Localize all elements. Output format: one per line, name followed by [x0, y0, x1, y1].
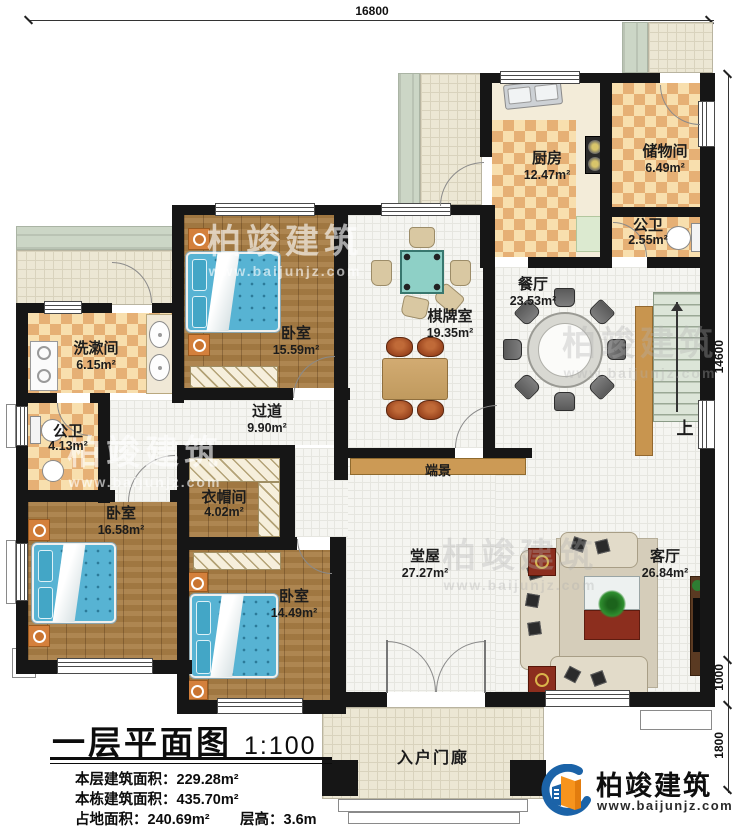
- pillow: [38, 587, 53, 619]
- pillow: [192, 296, 207, 328]
- corridor-passage: [295, 448, 334, 537]
- door-leaf: [484, 640, 486, 693]
- dining-chair: [554, 392, 575, 411]
- porch-step: [348, 812, 520, 824]
- door-leaf: [386, 640, 388, 693]
- dining-chair: [554, 288, 575, 307]
- wall: [345, 448, 455, 458]
- shower-drain: [42, 460, 64, 482]
- brand-website: www.baijunjz.com: [597, 798, 733, 813]
- window: [545, 690, 630, 707]
- pillow: [196, 601, 211, 635]
- patio-roof-band: [16, 226, 178, 250]
- cloakroom-hatch: [258, 482, 280, 537]
- window: [57, 658, 153, 674]
- brand-logo-svg: [540, 764, 592, 822]
- window: [16, 543, 28, 601]
- stat-footprint-area: 占地面积：240.69m²: [75, 808, 210, 829]
- cloakroom-hatch: [189, 458, 280, 482]
- closet-hatch: [190, 366, 278, 388]
- room-label-bath-north: 公卫2.55m²: [628, 218, 668, 248]
- room-label-bedroom-west: 卧室16.58m²: [98, 505, 145, 539]
- room-label-corridor: 过道9.90m²: [247, 404, 287, 436]
- room-label-kitchen: 厨房12.47m²: [524, 150, 571, 184]
- nightstand: [28, 625, 50, 647]
- window: [44, 301, 82, 314]
- stair-arrow-head: [671, 296, 683, 311]
- stairs-up-label: 上: [677, 414, 694, 439]
- room-corridor: [110, 400, 338, 445]
- title-rule: [50, 757, 332, 760]
- nightstand: [188, 334, 210, 356]
- brand-logo-icon: [540, 764, 592, 822]
- stat-building-area: 本栋建筑面积：435.70m²: [75, 788, 239, 809]
- washing-machine: [30, 341, 58, 391]
- nightstand: [186, 572, 208, 592]
- wall: [600, 73, 612, 268]
- wall: [700, 73, 715, 103]
- nightstand: [186, 680, 208, 700]
- wall: [700, 449, 715, 707]
- wall: [605, 207, 715, 217]
- stool: [386, 400, 413, 420]
- window-sill: [6, 540, 16, 604]
- room-label-living: 客厅26.84m²: [642, 548, 689, 582]
- sofa-pillow: [527, 621, 542, 636]
- window: [698, 400, 715, 449]
- sofa-pillow: [525, 593, 540, 608]
- room-label-washroom: 洗漱间6.15m²: [73, 340, 118, 374]
- wall: [16, 303, 28, 408]
- stool: [417, 400, 444, 420]
- side-table: [528, 548, 556, 576]
- stat-floor-area: 本层建筑面积：229.28m²: [75, 768, 239, 789]
- wall: [480, 73, 492, 157]
- wall: [172, 205, 184, 403]
- sink-basin: [534, 83, 559, 101]
- room-label-bedroom-south: 卧室14.49m²: [271, 588, 318, 622]
- room-label-storage: 储物间6.49m²: [642, 143, 687, 177]
- pillow: [38, 550, 53, 582]
- wall: [177, 448, 189, 714]
- northeast-terrace: [648, 22, 713, 73]
- plan-title-text: 一层平面图: [52, 724, 232, 761]
- window: [16, 406, 28, 446]
- plan-scale: 1:100: [244, 732, 317, 760]
- room-label-hall: 堂屋27.27m²: [402, 548, 449, 582]
- plant: [598, 590, 626, 618]
- stool: [386, 337, 413, 357]
- porch-label: 入户门廊: [397, 744, 469, 768]
- room-label-chess: 棋牌室19.35m²: [427, 308, 474, 342]
- room-label-bedroom-north: 卧室15.59m²: [273, 325, 320, 359]
- window: [500, 71, 580, 84]
- window: [698, 101, 715, 147]
- stair-rail-wall: [635, 306, 653, 456]
- closet-hatch: [193, 552, 281, 570]
- kitchen-floor: [492, 120, 576, 257]
- dimension-label-right-bottom: 1800: [712, 732, 726, 759]
- room-label-cloakroom: 衣帽间4.02m²: [201, 490, 246, 520]
- wall: [16, 601, 28, 674]
- window-sill: [6, 404, 16, 448]
- wall: [490, 448, 532, 458]
- room-label-dining: 餐厅23.53m²: [510, 276, 557, 310]
- floor-plan: 16800 14600 1000 1800: [0, 0, 750, 834]
- round-dining-table-top: [538, 323, 592, 377]
- west-patio: [16, 250, 178, 305]
- wall: [330, 537, 346, 707]
- corridor-passage: [334, 480, 348, 537]
- sink: [149, 354, 170, 381]
- wall: [98, 393, 110, 503]
- terrace-roof-band-ne: [622, 22, 648, 73]
- dining-chair: [607, 339, 626, 360]
- side-step: [640, 710, 712, 730]
- wall: [177, 445, 295, 458]
- pillow: [196, 640, 211, 674]
- dimension-label-top: 16800: [355, 4, 388, 18]
- porch-step: [338, 799, 528, 812]
- stair-arrow: [676, 302, 678, 412]
- mahjong-chair: [371, 260, 392, 286]
- wall: [172, 388, 293, 400]
- sink-basin: [507, 86, 532, 104]
- dimension-line-top: [28, 20, 714, 21]
- window: [215, 203, 315, 216]
- toilet-tank: [30, 416, 41, 444]
- toilet: [666, 226, 691, 250]
- window: [217, 698, 303, 714]
- washer-drum: [37, 346, 51, 360]
- double-bed: [32, 543, 116, 623]
- dining-chair: [503, 339, 522, 360]
- wall: [280, 458, 295, 538]
- nightstand: [28, 519, 50, 541]
- title-rule: [50, 763, 332, 764]
- console-label: 端景: [425, 460, 451, 479]
- nightstand: [188, 228, 210, 250]
- pillow: [192, 259, 207, 291]
- double-bed: [186, 252, 280, 332]
- double-bed: [190, 594, 278, 678]
- mahjong-table: [400, 250, 444, 294]
- sink: [149, 321, 170, 348]
- mahjong-chair: [409, 227, 435, 248]
- porch-column: [322, 760, 358, 796]
- wall: [700, 145, 715, 402]
- stat-floor-height: 层高：3.6m: [240, 808, 317, 829]
- terrace-roof-band: [398, 73, 420, 205]
- wall: [485, 692, 547, 707]
- dimension-line-right: [728, 75, 729, 793]
- kitchen-mat: [576, 216, 602, 252]
- mahjong-chair: [450, 260, 471, 286]
- room-label-bath-west: 公卫4.13m²: [48, 424, 88, 454]
- washer-drum: [37, 369, 51, 383]
- wall: [177, 537, 297, 550]
- writing-desk: [382, 358, 448, 400]
- wall: [334, 205, 348, 480]
- wall: [16, 446, 28, 543]
